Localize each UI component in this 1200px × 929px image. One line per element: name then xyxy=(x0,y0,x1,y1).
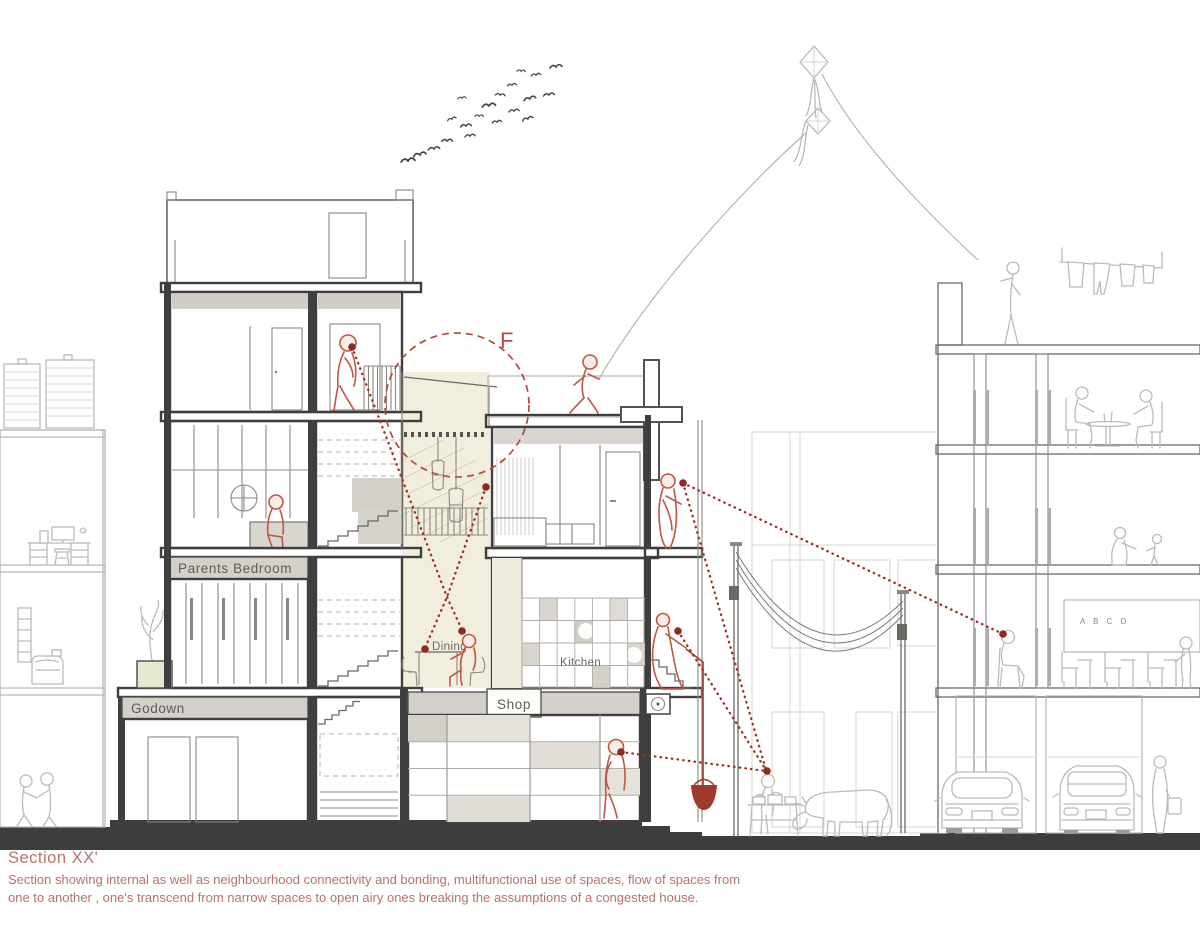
background-building xyxy=(752,432,948,833)
kite-string-to-roof-person xyxy=(822,74,1001,281)
label-kitchen: Kitchen xyxy=(560,657,601,669)
left-neighbour-building xyxy=(0,355,105,827)
children-playing xyxy=(17,773,56,827)
car-1 xyxy=(935,772,1029,833)
roof-volume xyxy=(167,190,413,283)
label-parents-bedroom: Parents Bedroom xyxy=(178,561,292,576)
godown: Godown xyxy=(118,697,308,822)
caption-line-2: one to another , one's transcend from na… xyxy=(8,889,740,907)
label-focus-marker: F xyxy=(500,328,514,353)
label-godown: Godown xyxy=(131,701,185,716)
study-desk xyxy=(28,527,90,565)
main-building-section: Parents Bedroom Godown xyxy=(118,190,717,822)
kite-2 xyxy=(794,108,830,166)
kite-1 xyxy=(800,46,828,118)
cross-column xyxy=(621,360,682,480)
section-drawing: Parents Bedroom Godown xyxy=(0,0,1200,929)
floor2-stair-shaft xyxy=(308,421,402,548)
floor1-stair-shaft xyxy=(308,557,402,688)
car-2 xyxy=(1053,766,1141,834)
slab-floor2 xyxy=(161,412,421,421)
label-dining: Dining xyxy=(432,641,467,653)
water-tanks xyxy=(4,355,94,428)
red-figure-skater xyxy=(570,355,599,413)
cow xyxy=(793,790,892,836)
sofa-and-shelf xyxy=(18,608,63,684)
kitchen-slab xyxy=(486,548,658,558)
section-title: Section XX' xyxy=(8,849,740,868)
parents-bedroom: Parents Bedroom xyxy=(170,557,308,688)
label-classroom-board: A B C D xyxy=(1080,617,1129,626)
right-bedroom xyxy=(492,427,645,548)
slab-ground xyxy=(118,688,422,697)
red-figure-stair-woman xyxy=(653,614,686,690)
slab-floor1 xyxy=(161,548,421,557)
caption-line-1: Section showing internal as well as neig… xyxy=(8,871,740,889)
slab-floor3 xyxy=(161,283,421,292)
power-lines xyxy=(729,542,909,836)
ground-stair-shaft xyxy=(308,697,402,822)
red-figure-balcony-woman xyxy=(659,474,681,548)
kite-string-to-skater xyxy=(599,132,807,379)
architectural-section-sheet: Parents Bedroom Godown xyxy=(0,0,1200,929)
birds-flock xyxy=(401,65,562,162)
floor3-left-room xyxy=(170,292,310,412)
caption-block: Section XX' Section showing internal as … xyxy=(8,849,740,907)
pulley-device xyxy=(646,694,670,714)
vendor-cart xyxy=(748,793,800,837)
label-shop: Shop xyxy=(497,697,531,712)
electric-pole-1 xyxy=(729,542,742,836)
right-neighbour-building: A B C D xyxy=(935,248,1200,834)
floor2-bedroom xyxy=(170,421,310,548)
shop: Shop xyxy=(400,688,646,822)
kitchen: Kitchen xyxy=(492,558,645,688)
